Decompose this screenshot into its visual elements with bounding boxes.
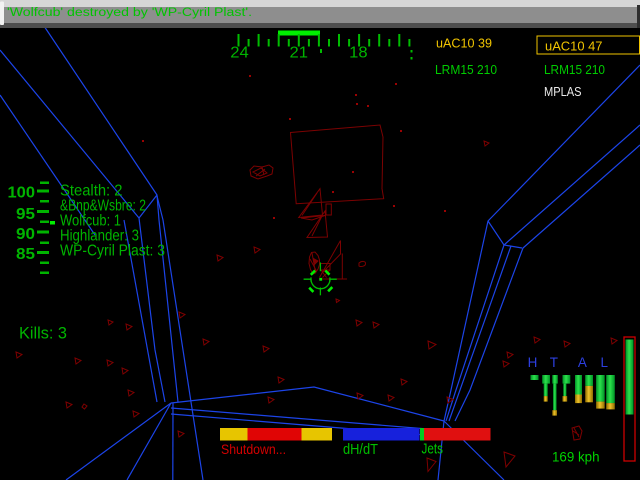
svg-text:LRM15 210: LRM15 210 [544, 62, 605, 77]
svg-text:H: H [528, 355, 538, 370]
svg-text:Jets: Jets [422, 442, 444, 458]
svg-text:dH/dT: dH/dT [343, 441, 378, 458]
svg-text:WP-Cyril Plast: 3: WP-Cyril Plast: 3 [60, 243, 165, 260]
svg-text:L: L [601, 355, 609, 370]
svg-text:85: 85 [16, 246, 35, 263]
svg-text:24: 24 [230, 45, 249, 62]
svg-text:Kills: 3: Kills: 3 [19, 324, 67, 343]
svg-text:MPLAS: MPLAS [544, 84, 582, 99]
svg-text:95: 95 [16, 206, 35, 223]
svg-text:169 kph: 169 kph [552, 450, 600, 465]
svg-text:uAC10 47: uAC10 47 [545, 39, 603, 54]
svg-text:A: A [578, 355, 587, 370]
svg-text:'Wolfcub' destroyed by 'WP-Cyr: 'Wolfcub' destroyed by 'WP-Cyril Plast'. [7, 7, 252, 19]
svg-text:18: 18 [349, 45, 368, 62]
svg-text:90: 90 [16, 226, 35, 243]
svg-text:100: 100 [8, 185, 36, 202]
svg-text:LRM15 210: LRM15 210 [435, 62, 497, 77]
svg-text:21: 21 [290, 45, 309, 62]
svg-text:uAC10 39: uAC10 39 [436, 36, 492, 51]
svg-text:T: T [550, 355, 558, 370]
svg-text:Shutdown...: Shutdown... [221, 441, 286, 457]
